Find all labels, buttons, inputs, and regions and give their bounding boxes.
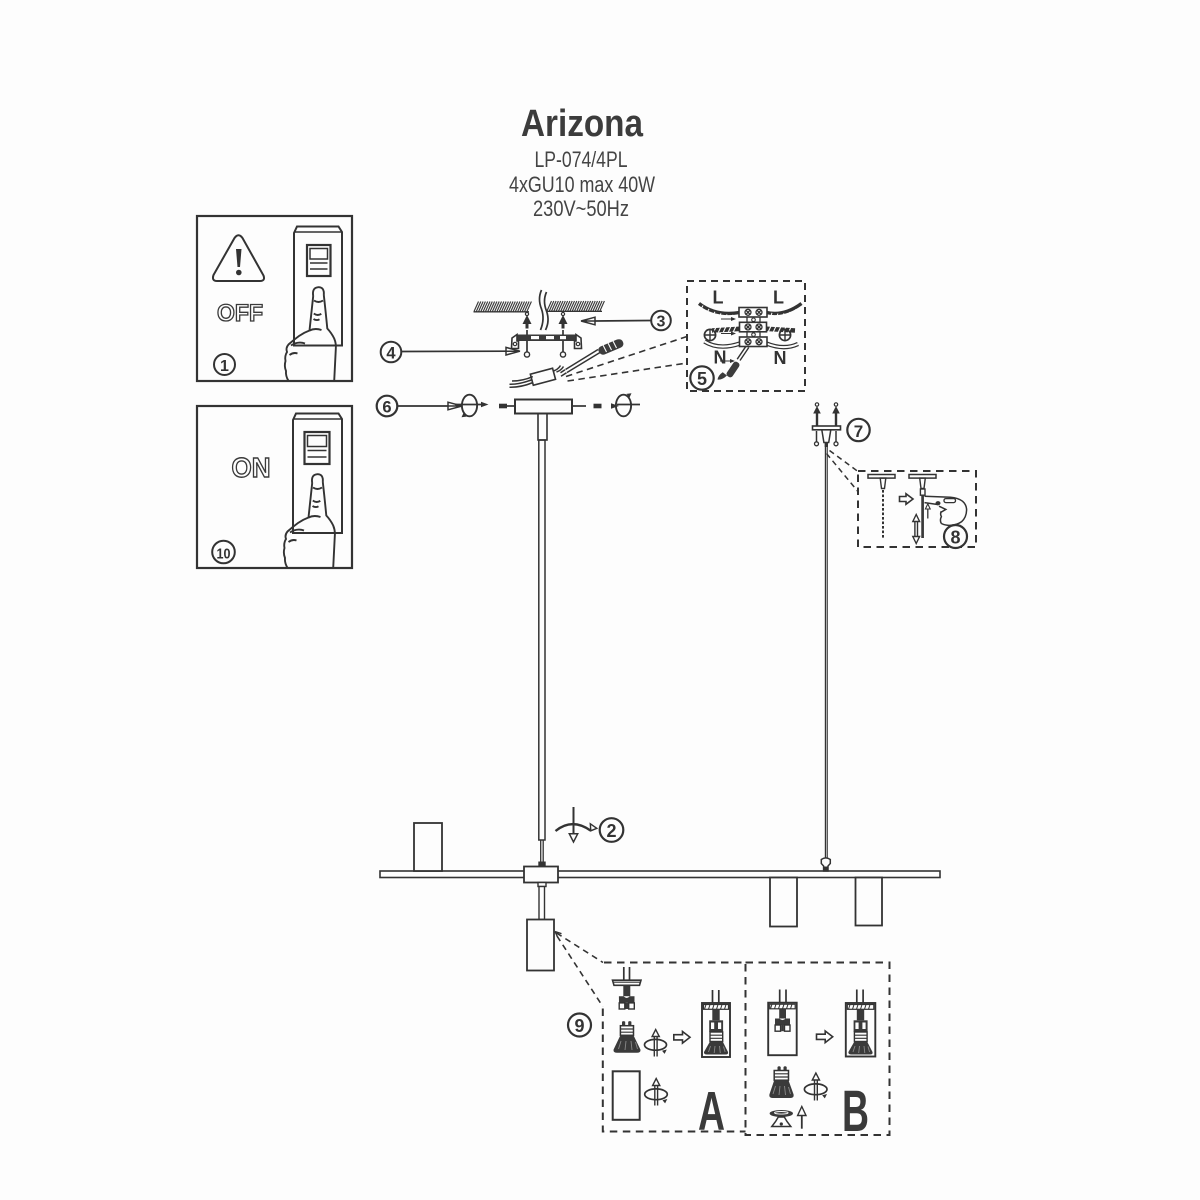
svg-text:10: 10 xyxy=(217,546,231,563)
svg-text:230V~50Hz: 230V~50Hz xyxy=(533,196,629,221)
svg-text:4xGU10 max 40W: 4xGU10 max 40W xyxy=(509,172,655,197)
svg-text:4: 4 xyxy=(386,345,396,363)
svg-text:OFF: OFF xyxy=(217,300,263,327)
svg-text:A: A xyxy=(698,1080,725,1142)
svg-text:Arizona: Arizona xyxy=(521,103,644,145)
svg-text:1: 1 xyxy=(220,358,229,375)
svg-text:N: N xyxy=(714,348,727,368)
svg-text:5: 5 xyxy=(697,369,707,389)
svg-text:8: 8 xyxy=(950,528,960,548)
svg-text:L: L xyxy=(773,288,784,308)
svg-text:N: N xyxy=(774,348,787,368)
svg-text:6: 6 xyxy=(382,399,391,417)
svg-text:LP-074/4PL: LP-074/4PL xyxy=(535,147,628,172)
svg-text:B: B xyxy=(842,1079,869,1144)
svg-text:7: 7 xyxy=(854,422,863,441)
svg-text:2: 2 xyxy=(606,821,616,841)
svg-text:L: L xyxy=(713,288,724,308)
svg-text:3: 3 xyxy=(657,314,666,331)
svg-text:ON: ON xyxy=(232,452,271,483)
svg-text:9: 9 xyxy=(574,1016,584,1036)
